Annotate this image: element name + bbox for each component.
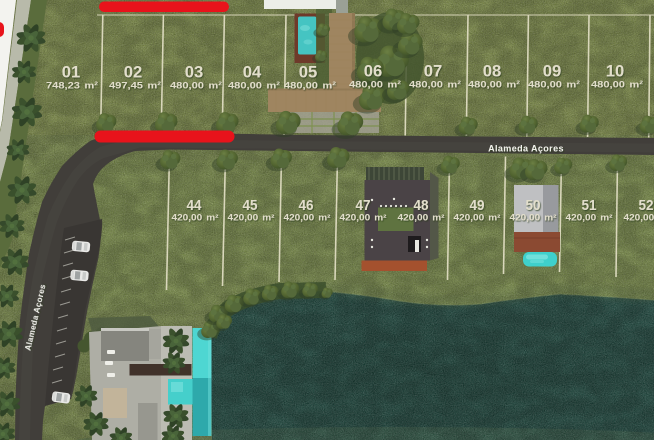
svg-text:480,00 m²: 480,00 m² — [170, 81, 222, 91]
svg-text:480,00 m²: 480,00 m² — [528, 80, 580, 90]
svg-text:420,00 m²: 420,00 m² — [510, 213, 557, 223]
svg-text:420,00 m²: 420,00 m² — [172, 213, 219, 223]
svg-text:420,00 m²: 420,00 m² — [228, 213, 275, 223]
svg-text:420,00 m²: 420,00 m² — [340, 213, 387, 223]
svg-text:Alameda Açores: Alameda Açores — [488, 144, 564, 154]
svg-text:03: 03 — [185, 63, 204, 82]
svg-text:420,00 m²: 420,00 m² — [398, 213, 445, 223]
svg-text:05: 05 — [299, 63, 318, 82]
svg-text:04: 04 — [243, 63, 262, 82]
svg-text:10: 10 — [606, 62, 625, 81]
svg-text:420,00 m²: 420,00 m² — [454, 213, 501, 223]
svg-text:480,00 m²: 480,00 m² — [468, 80, 520, 90]
svg-text:480,00 m²: 480,00 m² — [349, 80, 401, 90]
svg-text:06: 06 — [364, 62, 383, 81]
svg-text:420,00 m²: 420,00 m² — [566, 213, 613, 223]
svg-text:08: 08 — [483, 62, 502, 81]
svg-text:07: 07 — [424, 62, 443, 81]
svg-text:480,00 m²: 480,00 m² — [284, 81, 336, 91]
svg-text:480,00 m²: 480,00 m² — [228, 81, 280, 91]
svg-text:480,00 m²: 480,00 m² — [591, 80, 643, 90]
svg-text:480,00 m²: 480,00 m² — [409, 80, 461, 90]
svg-text:01: 01 — [62, 63, 81, 82]
svg-text:420,00 m²: 420,00 m² — [624, 213, 654, 223]
svg-text:09: 09 — [543, 62, 562, 81]
svg-text:748,23 m²: 748,23 m² — [46, 81, 98, 91]
svg-text:02: 02 — [124, 63, 143, 82]
svg-text:420,00 m²: 420,00 m² — [284, 213, 331, 223]
svg-text:497,45 m²: 497,45 m² — [109, 81, 161, 91]
